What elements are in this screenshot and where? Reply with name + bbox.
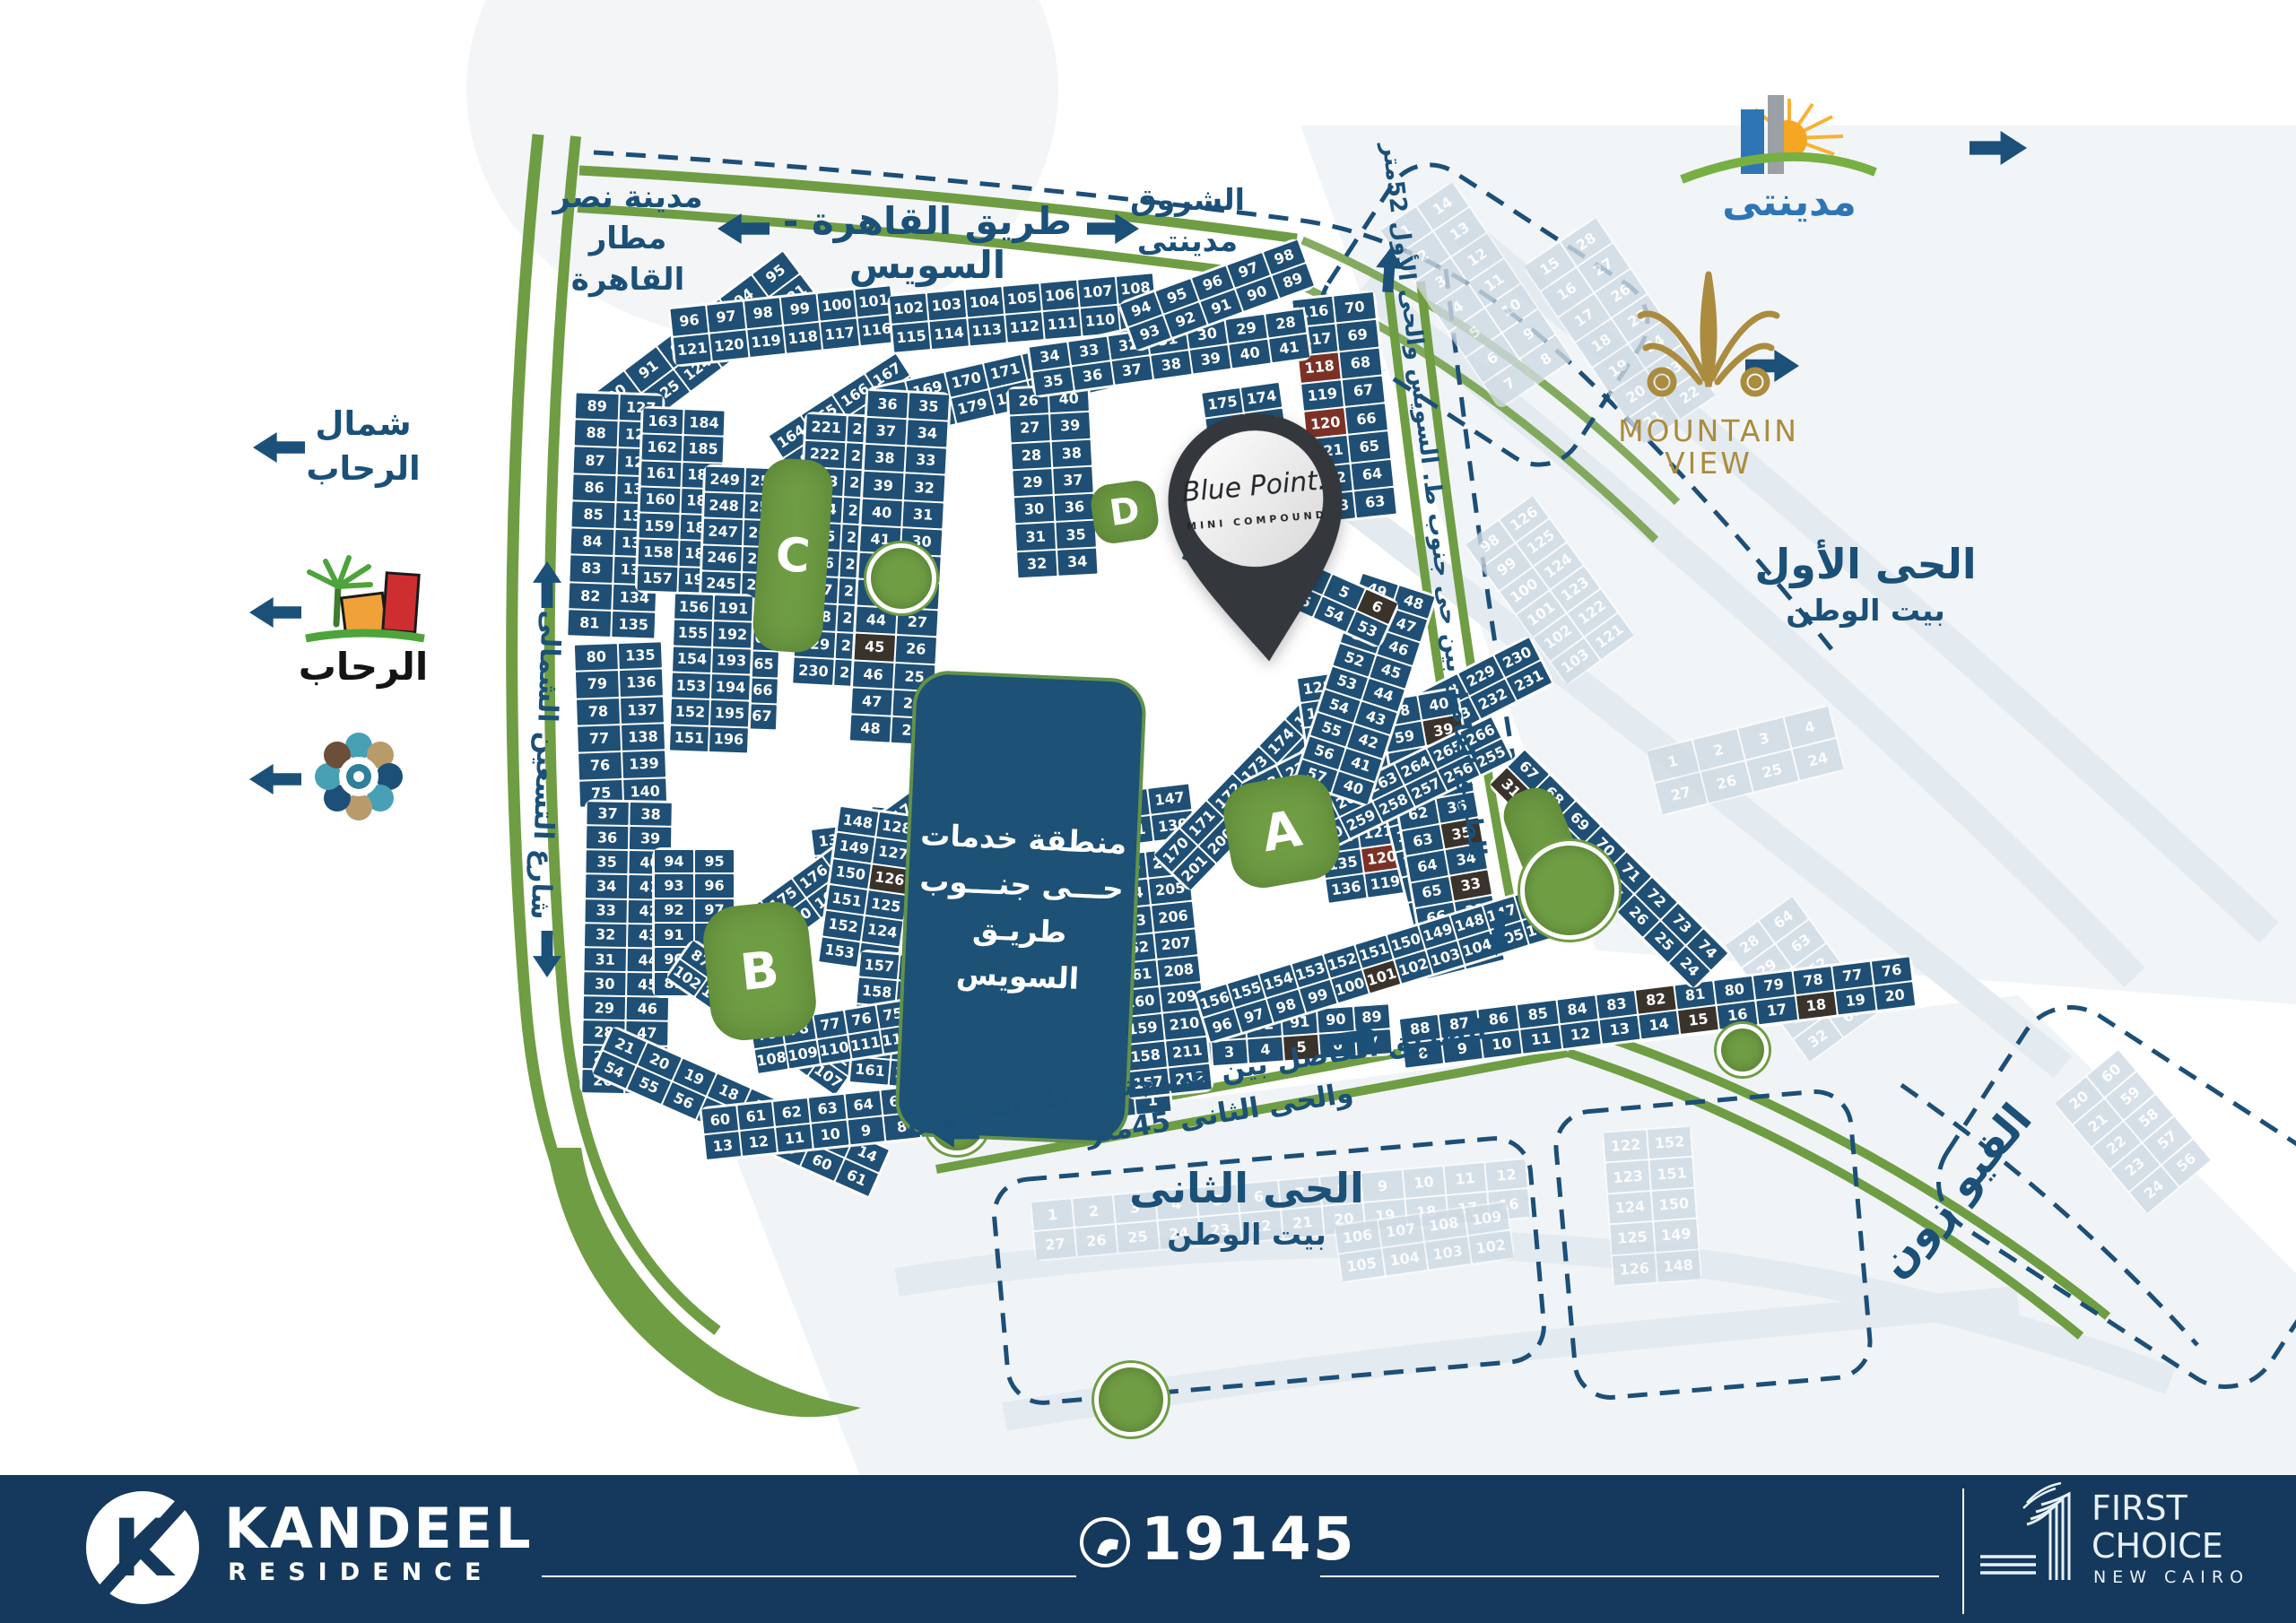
plot-cell: 161	[850, 1057, 890, 1085]
plot-cell: 38	[865, 445, 905, 472]
label-cairo-suez-road: طريق القاهرة - السويس	[773, 199, 1082, 287]
label-district2-line2: بيت الوطن	[1103, 1216, 1390, 1254]
first-choice-one-glyph	[1980, 1483, 2069, 1580]
plot-cell: 162	[642, 435, 683, 461]
plot-cell: 152	[1648, 1127, 1692, 1159]
plot-cell: 104	[965, 287, 1004, 317]
plot-cell: 150	[1652, 1188, 1696, 1220]
first-choice-divider	[1962, 1488, 1964, 1614]
mountain-view-ornament-icon	[1640, 274, 1777, 394]
plot-cell: 1	[1031, 1199, 1074, 1230]
plot-cell: 35	[586, 851, 627, 874]
plot-cell: 114	[930, 319, 969, 349]
plot-cell: 38	[1052, 439, 1091, 466]
mountain-view-text-1: MOUNTAIN	[1618, 413, 1799, 448]
plot-cell: 12	[1485, 1159, 1527, 1191]
plot-cell: 206	[1152, 902, 1195, 932]
plot-cell: 126	[1613, 1254, 1657, 1286]
plot-cell: 102	[890, 293, 928, 323]
label-shorouk: الشروق مدينتى	[1116, 179, 1259, 262]
plot-cell: 98	[744, 298, 782, 328]
label-district1-line2: بيت الوطن	[1726, 592, 2005, 630]
plot-cell: 207	[1154, 929, 1197, 959]
plot-cell: 37	[587, 802, 628, 825]
roundabout	[866, 543, 936, 613]
mountain-view-logo: MOUNTAIN VIEW	[1610, 265, 1807, 490]
plot-cell: 160	[640, 487, 681, 513]
plot-cell: 210	[1163, 1010, 1206, 1039]
plot-cell: 34	[1030, 343, 1070, 371]
plot-cell: 40	[861, 499, 901, 525]
plot-cell: 103	[1425, 1237, 1470, 1269]
plot-cell: 87	[574, 447, 617, 474]
plot-cell: 32	[1017, 551, 1057, 578]
roundabout	[1094, 1363, 1168, 1436]
plot-cell: 39	[863, 472, 903, 499]
plot-cell: 247	[703, 519, 743, 545]
plot-cell: 148	[838, 807, 878, 837]
mandala-logo-icon	[314, 732, 404, 821]
plot-cell: 82	[569, 583, 612, 610]
plot-cell: 92	[655, 899, 693, 922]
label-nasr-city: مدينة نصر مطار القاهرة	[529, 178, 726, 301]
plot-cell: 152	[822, 911, 863, 941]
plot-cell: 139	[622, 751, 665, 778]
plot-cell: 191	[714, 595, 752, 621]
label-shorouk-line1: الشروق	[1116, 179, 1259, 221]
plot-cell: 151	[826, 885, 866, 915]
plot-cell: 155	[674, 621, 712, 647]
plot-cell: 32	[904, 474, 944, 501]
plot-cell: 40	[1230, 340, 1270, 369]
plot-cell: 29	[1226, 315, 1266, 343]
plot-cell: 39	[1190, 345, 1231, 374]
plot-cell: 208	[1158, 956, 1201, 985]
plot-cell: 230	[793, 657, 833, 684]
plot-cell: 246	[702, 545, 742, 571]
plot-cell: 48	[850, 715, 891, 742]
phone-icon-handset	[1093, 1534, 1122, 1559]
ghost-plot-strip: 122152123151124150125149126148	[1602, 1125, 1702, 1288]
plot-cell: 33	[906, 447, 946, 474]
plot-cell: 88	[575, 421, 618, 447]
plot-cell: 19	[1835, 987, 1875, 1015]
rehab-grass	[306, 633, 424, 638]
plot-cell: 31	[1015, 523, 1055, 551]
plot-cell: 13	[1599, 1016, 1639, 1044]
mountain-view-text-2: VIEW	[1665, 446, 1752, 481]
plot-cell: 101	[855, 286, 892, 317]
plot-cell: 76	[845, 1006, 878, 1034]
plot-cell: 30	[584, 972, 625, 995]
plot-cell: 31	[585, 948, 626, 971]
plot-cell: 28	[1265, 309, 1306, 338]
plot-cell: 111	[849, 1030, 883, 1058]
mandala-dot	[353, 771, 364, 782]
plot-cell: 184	[684, 410, 725, 436]
plot-cell: 194	[711, 674, 750, 700]
plot-cell: 193	[712, 648, 751, 674]
plot-cell: 150	[831, 859, 871, 889]
plot-cell: 195	[710, 700, 749, 726]
plot-cell: 84	[570, 528, 613, 555]
plot-cell: 36	[587, 826, 628, 849]
madinaty-logo-text: مدينتى	[1722, 179, 1857, 225]
block-c-park: C	[752, 457, 835, 655]
plot-cell: 77	[813, 1011, 847, 1038]
plot-cell: 137	[621, 697, 664, 724]
plot-cell: 112	[1005, 312, 1044, 342]
plot-cell: 124	[862, 916, 902, 946]
plot-cell: 111	[1043, 309, 1082, 339]
plot-cell: 107	[1078, 277, 1117, 307]
plot-cell: 31	[902, 501, 943, 528]
plot-cell: 161	[641, 461, 682, 487]
plot-cell: 115	[892, 322, 931, 352]
plot-cell: 123	[1606, 1161, 1650, 1193]
plot-cell: 33	[1450, 870, 1492, 900]
plot-cell: 37	[1053, 467, 1092, 494]
plot-cell: 30	[1014, 496, 1054, 523]
plot-cell: 81	[568, 610, 611, 637]
plot-cell: 151	[670, 725, 709, 751]
plot-cell: 64	[1406, 851, 1448, 881]
plot-cell: 163	[643, 408, 683, 434]
plot-cell: 110	[818, 1036, 851, 1063]
plot-cell: 126	[869, 864, 909, 894]
plot-cell: 89	[576, 393, 619, 420]
kandeel-logo-icon: K	[83, 1488, 203, 1608]
plot-cell: 79	[576, 671, 619, 698]
plot-strip: 2640273928382937303631353234	[1006, 384, 1099, 580]
plot-cell: 65	[1412, 877, 1453, 907]
plot-cell: 26	[896, 636, 936, 663]
plot-cell: 33	[585, 899, 626, 923]
services-area-text-2: حـــى جنـــوب	[908, 856, 1135, 912]
plot-cell: 249	[705, 467, 744, 493]
roundabout	[1717, 1024, 1769, 1076]
label-nasr-city-line2: مطار القاهرة	[529, 219, 726, 301]
plot-cell: 69	[1336, 320, 1378, 351]
plot-cell: 34	[1057, 548, 1097, 576]
footer-divider-left	[542, 1575, 1076, 1577]
plot-cell: 32	[585, 924, 626, 947]
plot-cell: 46	[853, 661, 893, 688]
plot-strip: 156191155192154193153194152195151196	[668, 592, 754, 754]
plot-cell: 138	[622, 724, 665, 751]
plot-strip: 801357913678137771387613975140	[573, 640, 668, 808]
label-nasr-city-line1: مدينة نصر	[529, 178, 726, 219]
plot-cell: 15	[1678, 1006, 1718, 1034]
plot-cell: 125	[1610, 1222, 1654, 1254]
first-choice-text-2: CHOICE	[2092, 1526, 2223, 1566]
plot-cell: 36	[1072, 361, 1112, 390]
plot-cell: 248	[704, 493, 744, 519]
madinaty-logo: مدينتى	[1655, 82, 1879, 226]
plot-cell: 79	[1753, 971, 1794, 999]
plot-cell: 117	[821, 318, 858, 349]
plot-cell: 12	[740, 1128, 777, 1156]
label-district2: الحى الثانى بيت الوطن	[1103, 1162, 1390, 1254]
plot-cell: 83	[570, 556, 613, 583]
plot-cell: 38	[1151, 351, 1192, 379]
plot-cell: 99	[781, 294, 819, 325]
plot-cell: 70	[1334, 292, 1376, 323]
plot-cell: 157	[637, 566, 677, 592]
plot-cell: 148	[1657, 1250, 1700, 1282]
label-shorouk-line2: مدينتى	[1116, 221, 1259, 262]
plot-cell: 96	[670, 306, 708, 336]
plot-cell: 27	[1010, 414, 1049, 441]
rehab-red-door	[383, 573, 419, 632]
roundabout	[1520, 841, 1619, 940]
plot-cell: 152	[671, 699, 709, 725]
plot-cell: 135	[612, 612, 655, 638]
plot-cell: 121	[674, 334, 711, 365]
plot-cell: 78	[577, 699, 620, 725]
plot-cell: 120	[710, 330, 748, 360]
blue-point-pin: Blue Point. MINI COMPOUND	[1135, 391, 1382, 682]
plot-cell: 125	[865, 890, 906, 920]
rehab-logo: الرحاب	[283, 545, 444, 698]
plot-cell: 41	[1269, 334, 1309, 363]
label-north-rehab-line2: الرحاب	[296, 447, 430, 491]
plot-cell: 29	[584, 996, 625, 1020]
plot-cell: 95	[695, 850, 734, 872]
plot-cell: 136	[1326, 874, 1366, 903]
plot-cell: 84	[1557, 995, 1597, 1023]
plot-cell: 108	[755, 1046, 788, 1073]
plot-cell: 86	[573, 474, 616, 501]
plot-cell: 62	[773, 1098, 810, 1126]
block-b-park: B	[700, 898, 819, 1044]
first-choice-logo-icon	[1973, 1480, 2108, 1614]
plot-cell: 109	[787, 1040, 820, 1068]
plot-cell: 93	[655, 874, 693, 897]
label-district1-line1: الحى الأول	[1726, 538, 2005, 592]
plot-cell: 35	[909, 393, 949, 420]
plot-cell: 113	[968, 316, 1006, 345]
plot-cell: 9	[848, 1116, 884, 1144]
plot-cell: 94	[655, 850, 693, 872]
plot-cell: 76	[578, 752, 622, 779]
plot-cell: 61	[737, 1102, 774, 1130]
plot-cell: 85	[572, 501, 615, 528]
plot-cell: 80	[1714, 976, 1754, 1004]
plot-cell: 135	[619, 642, 662, 669]
plot-cell: 76	[1872, 957, 1912, 985]
label-district2-line1: الحى الثانى	[1103, 1162, 1390, 1216]
plot-cell: 64	[845, 1091, 882, 1119]
plot-cell: 221	[805, 414, 846, 441]
plot-cell: 46	[627, 997, 668, 1020]
plot-cell: 34	[586, 875, 627, 898]
plot-cell: 18	[1796, 992, 1836, 1020]
plot-cell: 47	[851, 688, 891, 715]
plot-cell: 103	[927, 291, 966, 320]
plot-cell: 60	[701, 1106, 738, 1133]
plot-cell: 159	[639, 514, 680, 540]
rehab-logo-text: الرحاب	[299, 645, 429, 690]
plot-cell: 85	[1518, 1001, 1558, 1028]
plot-cell: 196	[709, 727, 748, 753]
plot-cell: 63	[809, 1095, 846, 1123]
plot-cell: 11	[1444, 1163, 1486, 1194]
kandeel-brand: KANDEEL	[224, 1496, 534, 1561]
plot-cell: 118	[784, 323, 822, 353]
plot-cell: 34	[907, 420, 947, 447]
plot-cell: 149	[1654, 1219, 1698, 1252]
plot-cell: 28	[1012, 442, 1051, 469]
plot-cell: 17	[1757, 996, 1797, 1024]
plot-cell: 37	[865, 418, 906, 445]
plot-cell: 156	[674, 595, 713, 621]
master-plan-page: 9091929394951261251241231221219697989910…	[0, 0, 2296, 1623]
plot-cell: 96	[695, 874, 734, 897]
plot-cell: 108	[1422, 1209, 1466, 1241]
plot-cell: 10	[1403, 1167, 1445, 1198]
plot-cell: 68	[1340, 348, 1382, 378]
plot-cell: 109	[1465, 1202, 1509, 1235]
plot-cell: 38	[630, 803, 671, 826]
plot-cell: 35	[1056, 521, 1095, 549]
plot-cell: 39	[1050, 412, 1090, 439]
plot-cell: 10	[812, 1121, 848, 1149]
plot-cell: 151	[1649, 1158, 1693, 1190]
label-district1: الحى الأول بيت الوطن	[1726, 538, 2005, 630]
plot-cell: 119	[747, 326, 785, 357]
first-choice-text-3: NEW CAIRO	[2093, 1567, 2249, 1587]
plot-cell: 122	[1604, 1130, 1648, 1162]
plot-cell: 12	[1561, 1020, 1601, 1048]
plot-cell: 77	[578, 725, 621, 752]
plot-cell: 83	[1596, 991, 1637, 1019]
plot-cell: 36	[1055, 494, 1094, 521]
plot-cell: 13	[705, 1132, 742, 1159]
plot-cell: 29	[1013, 469, 1052, 496]
plot-cell: 192	[713, 621, 752, 647]
plot-cell: 149	[834, 833, 874, 863]
plot-cell: 35	[1033, 368, 1074, 396]
plot-cell: 136	[620, 670, 663, 697]
plot-cell: 100	[818, 291, 856, 321]
plot-cell: 78	[1793, 967, 1833, 994]
plot-cell: 80	[575, 644, 618, 671]
plot-cell: 153	[819, 937, 859, 967]
plot-cell: 154	[673, 647, 711, 673]
plot-cell: 91	[655, 924, 693, 946]
plot-cell: 105	[1003, 283, 1041, 313]
plot-cell: 11	[1521, 1026, 1561, 1054]
phone-icon	[1076, 1514, 1134, 1571]
hotline-number: 19145	[1141, 1505, 1356, 1574]
plot-cell: 33	[1069, 337, 1109, 366]
plot-cell: 37	[1111, 356, 1152, 385]
kandeel-brand-sub: RESIDENCE	[228, 1558, 493, 1586]
label-north-rehab-line1: شمال	[296, 402, 430, 447]
plot-cell: 90	[1318, 1007, 1353, 1033]
plot-cell: 185	[683, 436, 724, 462]
plot-cell: 14	[1639, 1011, 1679, 1038]
plot-cell: 39	[630, 827, 671, 850]
plot-cell: 36	[867, 391, 908, 418]
plot-cell: 27	[1034, 1228, 1076, 1260]
plot-cell: 11	[776, 1124, 813, 1152]
plot-cell: 77	[1832, 962, 1873, 990]
plot-cell: 147	[1148, 784, 1191, 813]
plot-cell: 45	[855, 634, 895, 661]
services-area-text-3: طريـق السويس	[904, 903, 1134, 1004]
plot-cell: 157	[859, 952, 899, 980]
plot-cell: 82	[1636, 986, 1676, 1014]
plot-cell: 124	[1608, 1192, 1652, 1224]
footer-divider-right	[1320, 1575, 1939, 1577]
plot-cell: 153	[672, 673, 710, 699]
plot-cell: 20	[1874, 982, 1915, 1010]
plot-cell: 97	[708, 302, 745, 333]
label-north-rehab: شمال الرحاب	[296, 402, 430, 491]
first-choice-text-1: FIRST	[2092, 1488, 2187, 1528]
plot-cell: 102	[1468, 1231, 1513, 1263]
plot-cell: 158	[639, 540, 679, 566]
